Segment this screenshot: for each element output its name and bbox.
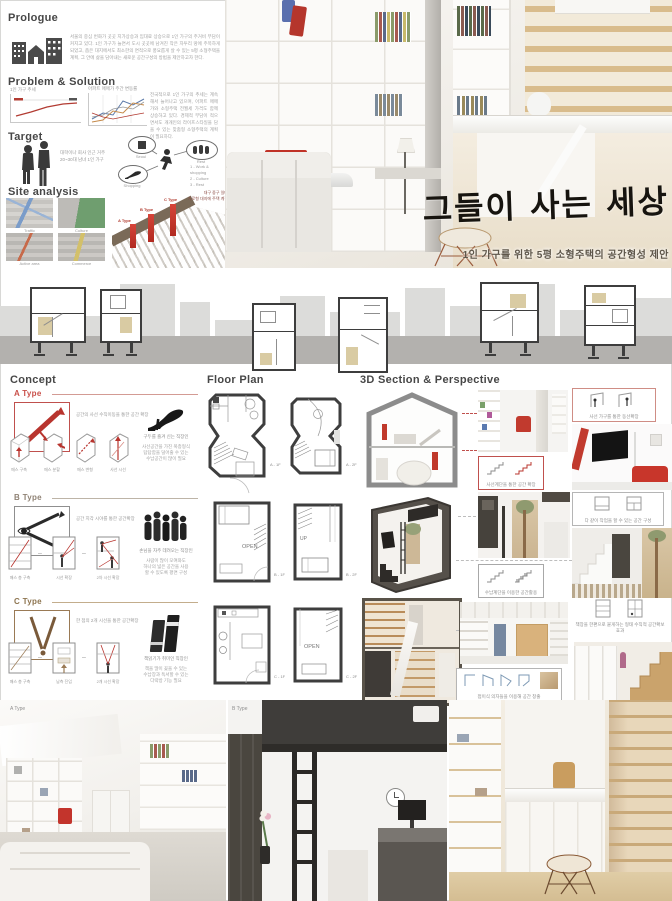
target-desc: 대학이나 회사 인근 거주 20~30대 남녀 1인 가구 bbox=[60, 150, 112, 164]
type-c-step1: 매스 층 구축 bbox=[3, 679, 37, 685]
section-drawing-1 bbox=[30, 287, 86, 343]
bookshelf-upper bbox=[365, 601, 405, 645]
storage-stairs-icon bbox=[513, 568, 535, 584]
site-axonometric: A Type B Type C Type 대구 중구 일대 가로형 대지에 주택… bbox=[112, 190, 228, 268]
tree-mural bbox=[512, 500, 538, 558]
type-c-callout-top: 책장을 한편으로 붙게하는 형태 수직적 공간확보 효과 bbox=[574, 598, 666, 638]
map-traffic bbox=[6, 198, 53, 228]
type-c-render-mid bbox=[460, 602, 568, 664]
connector-b-long bbox=[456, 560, 572, 561]
plan-c-1f-label: C - 1F bbox=[274, 674, 285, 679]
high-heel-icon bbox=[146, 406, 186, 432]
section-drawing-3 bbox=[252, 303, 296, 371]
plan-a-2f bbox=[288, 396, 344, 476]
problem-body: 전국적으로 1인 가구의 추세는 계속해서 늘어나고 있으며, 아파트 매매가와… bbox=[150, 92, 218, 136]
massing-step-icon bbox=[105, 430, 131, 464]
type-a-persona-desc: 사선공간을 가진 복층형식 답답함을 덜어줄 수 있는 수납공간이 많이 필요 bbox=[134, 444, 198, 462]
ladder-rail bbox=[292, 752, 297, 901]
type-a-steps: 매스 구축 매스 분할 매스 변형 사선 시선 bbox=[6, 430, 134, 476]
bottom-render-a: A Type bbox=[0, 700, 226, 901]
chart2-title: 아파트 매매가 주간 변동률 bbox=[88, 86, 137, 93]
type-a-step4: 사선 시선 bbox=[103, 467, 133, 473]
type-c-render-right bbox=[574, 642, 672, 700]
site-bar-b bbox=[148, 214, 154, 242]
chart-apartment-prices bbox=[88, 93, 147, 126]
map-active-area bbox=[6, 233, 53, 261]
stack-step-icon bbox=[6, 640, 34, 676]
books-row-3 bbox=[457, 6, 491, 36]
plan-c-2f: OPEN bbox=[292, 606, 344, 684]
type-b-steps: – – 매스 층 구축 시선 확장 2차 시선 확장 bbox=[6, 534, 138, 584]
folding-chair-diagrams bbox=[461, 671, 533, 689]
flowers bbox=[258, 808, 272, 822]
section-drawing-6 bbox=[584, 285, 636, 346]
stairs-icon bbox=[485, 568, 507, 584]
bottom-render-b: B Type bbox=[228, 700, 447, 901]
type-c-steps: – – 매스 층 구축 남측 진입 2개 시선 확장 bbox=[6, 638, 138, 688]
figure bbox=[620, 652, 626, 668]
books-row-1 bbox=[375, 12, 411, 42]
buildings-icon bbox=[12, 36, 66, 64]
hero-render: 그들이 사는 세상 1인 가구를 위한 5평 소형주택의 공간형성 제안 bbox=[225, 0, 672, 268]
plan-b-1f-label: B - 1F bbox=[274, 572, 285, 577]
bottom-render-c: C Type bbox=[449, 700, 672, 901]
desk-body bbox=[378, 842, 447, 901]
books-icon bbox=[146, 612, 182, 654]
map-commerce bbox=[58, 233, 105, 261]
type-c-callout-top-label: 책장을 한편으로 붙게하는 형태 수직적 공간확보 효과 bbox=[574, 622, 666, 634]
entry-step-icon bbox=[50, 640, 78, 676]
type-b-step3: 2차 시선 확장 bbox=[91, 575, 125, 581]
type-a-render-right bbox=[572, 424, 672, 490]
plan-c-open: OPEN bbox=[304, 644, 320, 650]
hero-title: 그들이 사는 세상 bbox=[393, 185, 670, 227]
chart-single-households bbox=[10, 94, 81, 123]
pillow bbox=[413, 706, 439, 722]
type-b-render-mid bbox=[478, 492, 570, 558]
type-b-callout-top: 다 같이 작업을 할 수 있는 공간 구성 bbox=[572, 492, 664, 526]
loft-mattress bbox=[262, 700, 447, 744]
type-a-callout-top: 사선 가구를 통한 동선확장 bbox=[572, 388, 656, 422]
ladder bbox=[502, 506, 505, 558]
monitor bbox=[398, 800, 426, 820]
stairs-icon bbox=[485, 460, 507, 476]
type-c-persona-desc: 책을 많이 꽂을 수 있는 수납장과 독서할 수 있는 다락방 기능 필요 bbox=[134, 666, 198, 684]
connector-a-1 bbox=[462, 413, 477, 414]
counter bbox=[375, 168, 441, 179]
type-b-step1: 매스 층 구축 bbox=[3, 575, 37, 581]
type-b-render-right bbox=[572, 528, 672, 598]
type-b-persona: 손님을 자주 데려오는 직장인 bbox=[134, 548, 198, 554]
hero-subtitle: 1인 가구를 위한 5평 소형주택의 공간형성 제안 bbox=[427, 246, 669, 261]
plan-b-2f-label: B - 2F bbox=[346, 572, 357, 577]
tv-panel bbox=[592, 430, 628, 462]
plan-a-2f-label: A - 2F bbox=[346, 462, 357, 467]
red-cube-chair bbox=[58, 808, 72, 824]
type-b-callout-bottom-label: 수납계단을 이용한 공간활용 bbox=[480, 590, 542, 596]
seoul-building-glyph bbox=[138, 141, 146, 149]
concept-header: Concept bbox=[10, 374, 56, 386]
two-sight-step-icon bbox=[94, 640, 122, 676]
type-b-label: B Type bbox=[14, 493, 42, 502]
type-a-callout-top-label: 사선 가구를 통한 동선확장 bbox=[574, 414, 654, 420]
type-b-step2: 시선 확장 bbox=[47, 575, 81, 581]
plan-c-2f-label: C - 2F bbox=[346, 674, 357, 679]
vase bbox=[260, 846, 270, 864]
type-a-render-mid bbox=[478, 390, 568, 452]
massing-step-icon bbox=[39, 430, 65, 464]
type-b-callout-top-label: 다 같이 작업을 할 수 있는 공간 구성 bbox=[574, 518, 662, 524]
target-diagram: Seoul Rest Shopping 1 - Work & shopping … bbox=[112, 134, 225, 190]
mezzanine-band bbox=[505, 788, 605, 803]
heel-glyph bbox=[124, 170, 142, 180]
type-a-label: A Type bbox=[14, 389, 42, 398]
floorplan-header: Floor Plan bbox=[207, 374, 264, 386]
type-a-callout-bottom: 사선계단을 통한 공간 확장 bbox=[478, 456, 544, 490]
type-c-label: C Type bbox=[14, 597, 42, 606]
type-c-callout-bottom: 접이식 의자들을 이용해 공간 창출 bbox=[456, 668, 562, 702]
floor-b bbox=[328, 850, 368, 901]
flower-stem bbox=[262, 820, 269, 848]
seoul-label: Seoul bbox=[124, 154, 158, 159]
stairs-icon bbox=[513, 460, 535, 476]
site-bar-c bbox=[170, 204, 176, 236]
target-people-icon bbox=[18, 140, 54, 188]
bottom-render-a-label: A Type bbox=[10, 706, 25, 712]
plan-a-1f bbox=[206, 392, 268, 494]
shopping-label: Shopping bbox=[116, 183, 148, 188]
type-b-persona-desc: 사람이 많이 모여와도 하나의 넓은 공간을 사용 할 수 있도록 평면 구성 bbox=[134, 558, 198, 576]
plan-c-1f bbox=[212, 604, 272, 686]
red-chair bbox=[516, 416, 531, 432]
wood-chair bbox=[553, 762, 575, 788]
prologue-title: Prologue bbox=[8, 12, 58, 24]
wood-stairs bbox=[630, 642, 672, 700]
section-header: 3D Section & Perspective bbox=[360, 374, 500, 386]
presentation-board: Prologue 서울의 중심 번화가 곳곳 지가상승과 임대료 상승으로 1인… bbox=[0, 0, 672, 901]
right-wood-bookshelf bbox=[609, 700, 672, 878]
chart1-title: 1인 가구 추세 bbox=[10, 87, 36, 94]
mezzanine-floor bbox=[453, 115, 672, 134]
site-bar-a-label: A Type bbox=[118, 218, 131, 223]
white-closets bbox=[574, 646, 618, 700]
left-shelf-tower bbox=[449, 700, 501, 901]
section-drawing-4 bbox=[338, 297, 388, 373]
type-a-persona: 구두를 즐겨 신는 직장인 bbox=[134, 434, 198, 440]
plan-b-up: UP bbox=[300, 536, 308, 542]
folding-chair-photo bbox=[540, 672, 558, 689]
sections-strip bbox=[0, 268, 672, 374]
type-a-callout-bottom-label: 사선계단을 통한 공간 확장 bbox=[480, 482, 542, 488]
type-a-3d-section bbox=[362, 390, 462, 490]
site-bar-b-label: B Type bbox=[140, 207, 153, 212]
blue-door bbox=[494, 624, 506, 656]
plan-b-1f: OPEN bbox=[212, 500, 272, 584]
section-drawing-2 bbox=[100, 289, 142, 343]
plan-b-open: OPEN bbox=[242, 544, 258, 550]
site-note: 대구 중구 일대 가로형 대지에 주택 계획 bbox=[174, 190, 228, 202]
type-b-3d-axon bbox=[362, 494, 456, 594]
type-c-3d-section bbox=[362, 598, 462, 706]
target-list: 1 - Work & shopping 2 - Culture 3 - Rest bbox=[190, 164, 226, 188]
seoul-node bbox=[128, 136, 156, 154]
stack-step-icon bbox=[6, 534, 34, 572]
rest-node bbox=[186, 140, 218, 160]
plan-b-2f: UP bbox=[292, 502, 344, 582]
type-c-persona: 책읽기가 취미인 직장인 bbox=[134, 656, 198, 662]
type-b-callout-bottom: 수납계단을 이용한 공간활용 bbox=[478, 564, 544, 598]
map-commerce-label: Commerce bbox=[58, 261, 105, 266]
furniture-diagram-icon bbox=[587, 391, 637, 409]
map-culture bbox=[58, 198, 105, 228]
shelf-diagram-icon bbox=[590, 598, 650, 620]
bottom-render-b-label: B Type bbox=[232, 706, 247, 712]
sight-step-icon bbox=[50, 534, 78, 572]
ladder-rail bbox=[312, 752, 317, 901]
books-row-2 bbox=[375, 94, 403, 116]
map-active-label: Active area bbox=[6, 261, 53, 266]
runner-icon bbox=[156, 148, 176, 172]
loft-frame bbox=[262, 744, 447, 752]
dark-wardrobe bbox=[228, 734, 262, 901]
sight-step-icon bbox=[94, 534, 122, 572]
desk-top bbox=[378, 828, 447, 842]
bed-a bbox=[0, 842, 150, 901]
massing-step-icon bbox=[72, 430, 98, 464]
shopping-node bbox=[118, 165, 148, 184]
cabinet-diagram-icon bbox=[591, 495, 645, 513]
site-bar-a bbox=[130, 224, 136, 248]
sofa bbox=[227, 152, 331, 252]
prologue-body: 서울의 중심 번화가 곳곳 지가상승과 임대료 상승으로 1인 가구의 주거비 … bbox=[70, 34, 220, 68]
plan-a-1f-label: A - 1F bbox=[270, 462, 281, 467]
type-a-step3: 매스 변형 bbox=[70, 467, 100, 473]
connector-a-2 bbox=[462, 450, 477, 451]
section-drawing-5 bbox=[480, 282, 539, 343]
crowd-icon bbox=[140, 510, 188, 544]
type-a-step1: 매스 구축 bbox=[4, 467, 34, 473]
skylight bbox=[555, 0, 650, 14]
massing-step-icon bbox=[6, 430, 32, 464]
connector-b-1 bbox=[458, 516, 476, 517]
type-c-step2: 남측 진입 bbox=[47, 679, 81, 685]
wire-chair-c bbox=[537, 852, 601, 896]
white-chair bbox=[527, 92, 551, 116]
site-title: Site analysis bbox=[8, 186, 79, 198]
type-c-step3: 2개 시선 확장 bbox=[91, 679, 125, 685]
type-a-step2: 매스 분할 bbox=[37, 467, 67, 473]
